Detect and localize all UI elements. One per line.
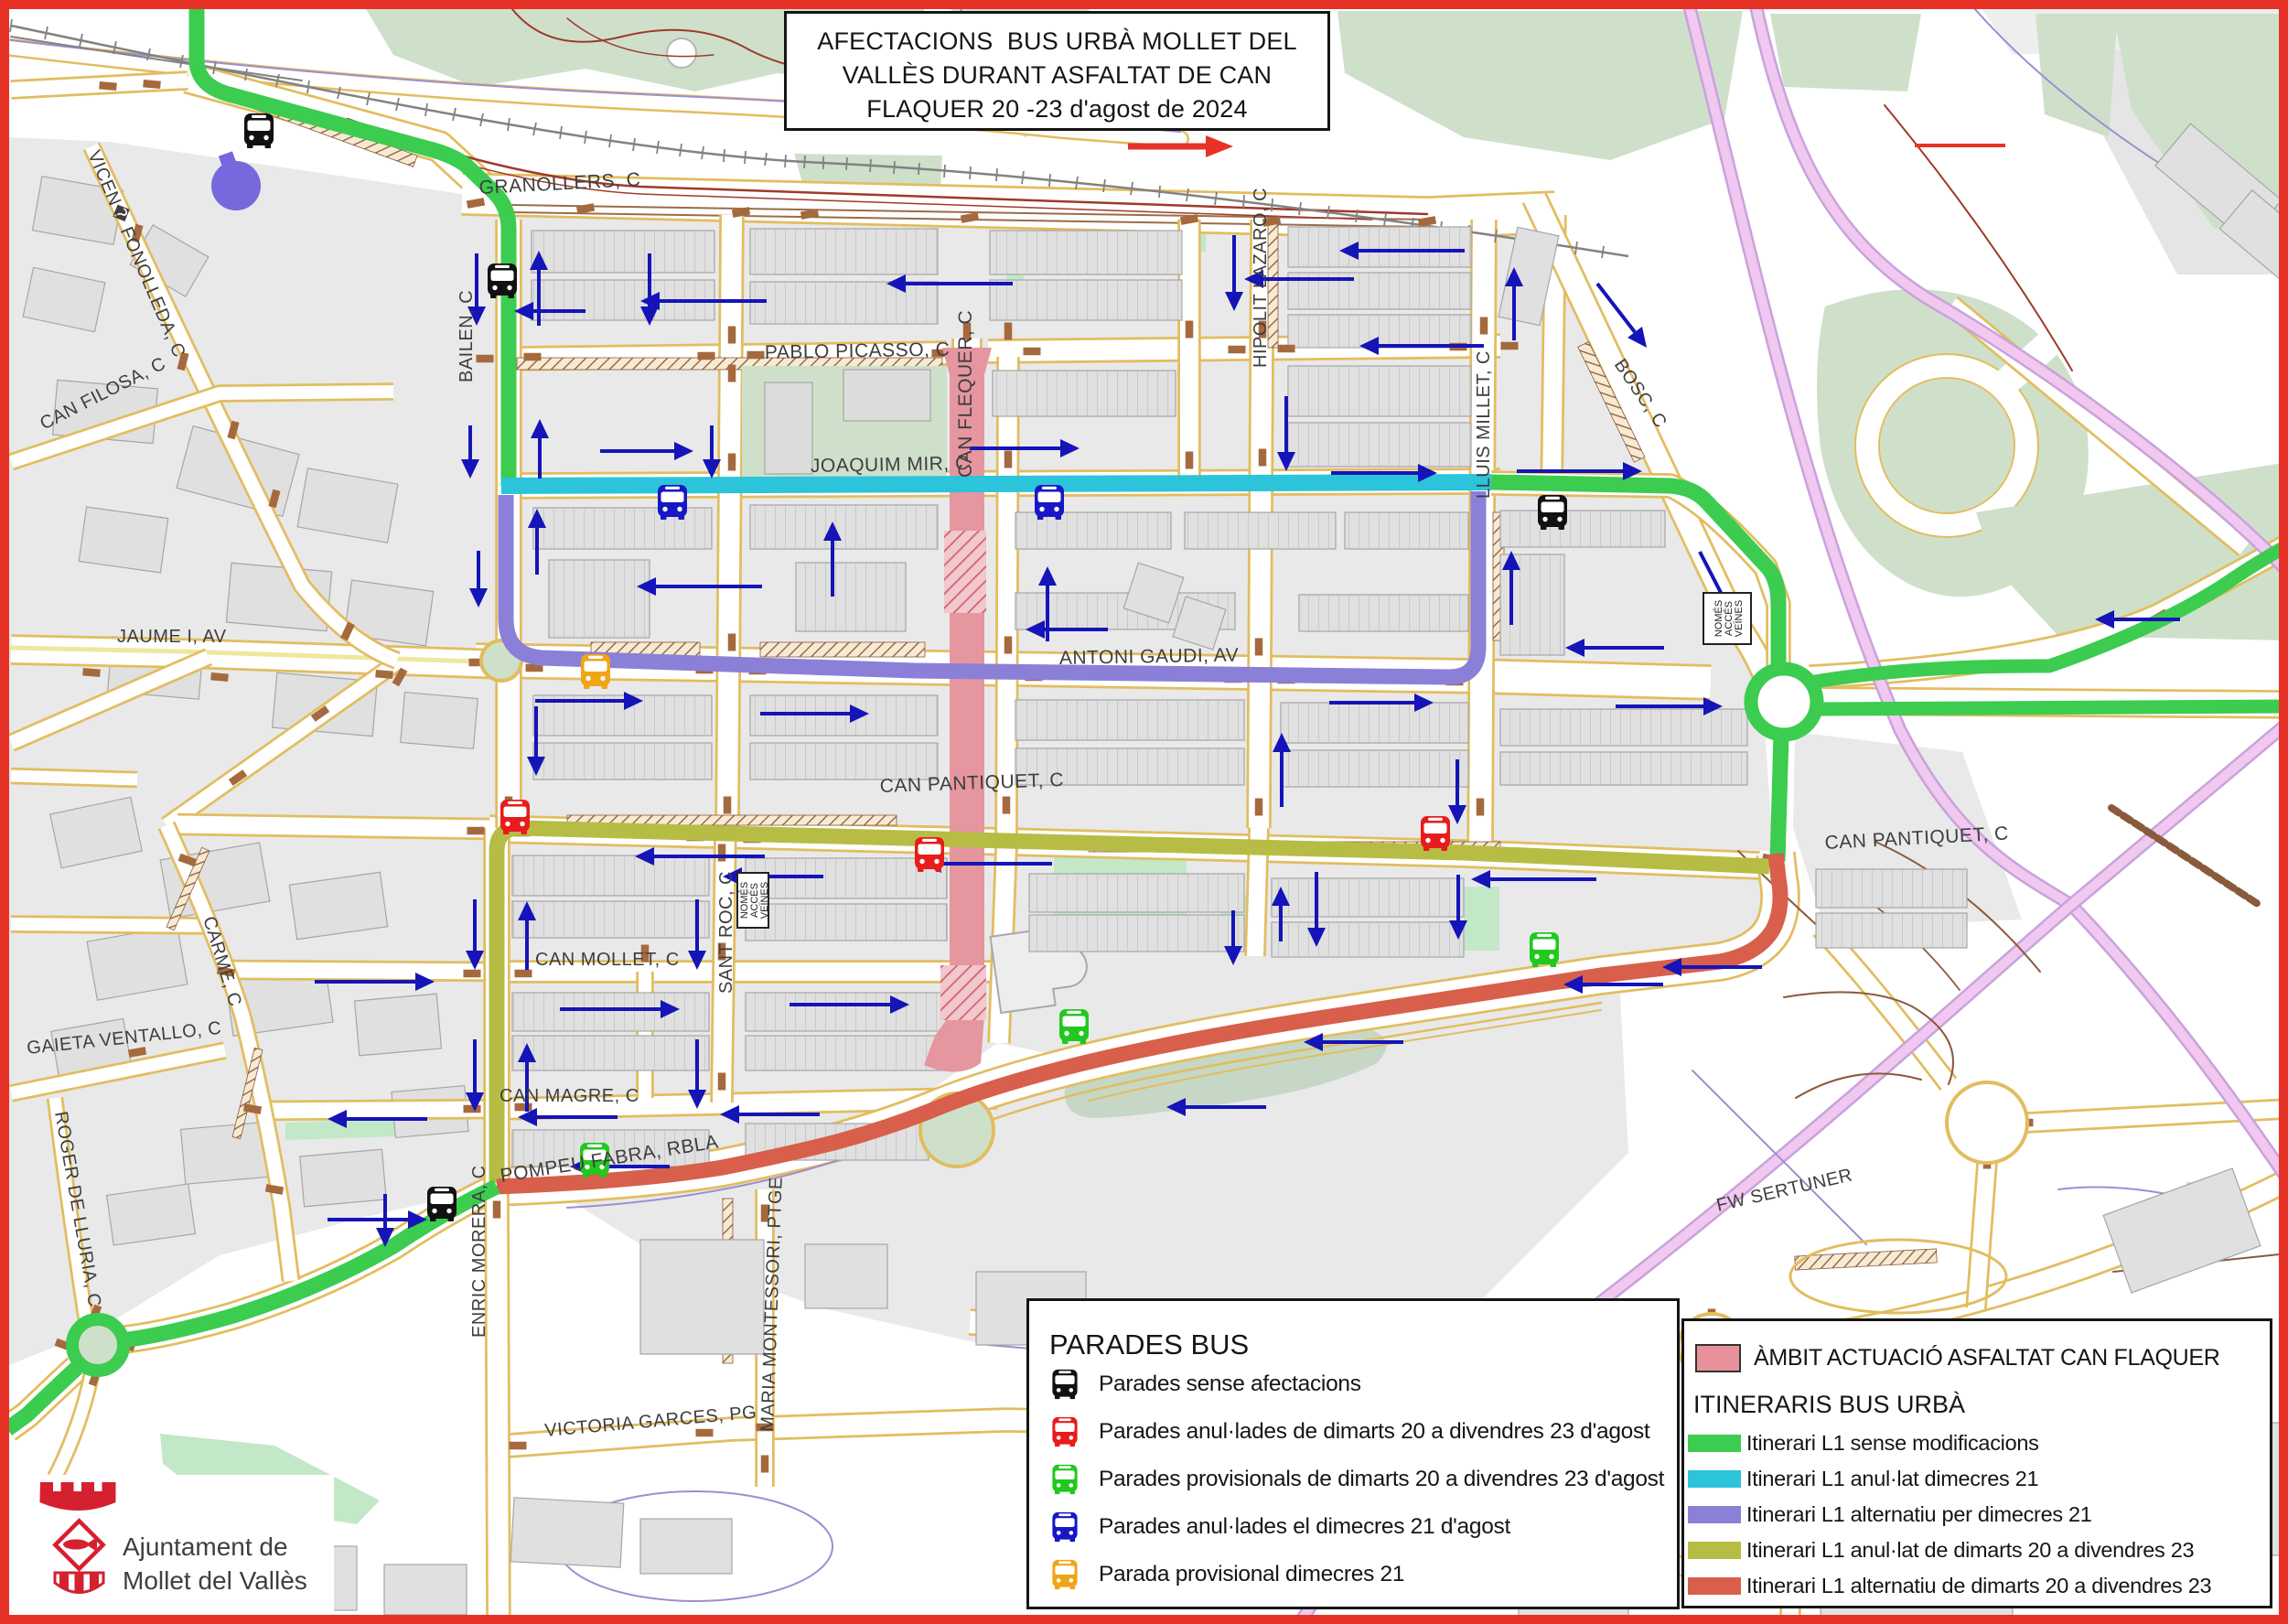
svg-text:SANT ROC, C: SANT ROC, C: [716, 871, 736, 994]
svg-text:CAN MAGRE, C: CAN MAGRE, C: [499, 1086, 639, 1106]
svg-text:JOAQUIM MIR, C: JOAQUIM MIR, C: [811, 453, 970, 477]
svg-text:PABLO PICASSO, C: PABLO PICASSO, C: [765, 339, 951, 363]
svg-text:ENRIC MORERA, C: ENRIC MORERA, C: [469, 1165, 489, 1338]
svg-text:CAN MOLLET, C: CAN MOLLET, C: [535, 950, 680, 970]
svg-text:ANTONI GAUDI, AV: ANTONI GAUDI, AV: [1059, 645, 1240, 669]
svg-text:HIPOLIT LAZARO, C: HIPOLIT LAZARO, C: [1251, 188, 1271, 368]
svg-text:BAILEN, C: BAILEN, C: [457, 290, 477, 382]
svg-text:VEÏNES: VEÏNES: [759, 882, 770, 919]
svg-text:LLUIS MILLET, C: LLUIS MILLET, C: [1474, 350, 1494, 499]
svg-text:JAUME I, AV: JAUME I, AV: [117, 627, 227, 647]
svg-text:VEÏNES: VEÏNES: [1734, 600, 1745, 637]
svg-text:CAN FLEQUER, C: CAN FLEQUER, C: [955, 310, 976, 478]
